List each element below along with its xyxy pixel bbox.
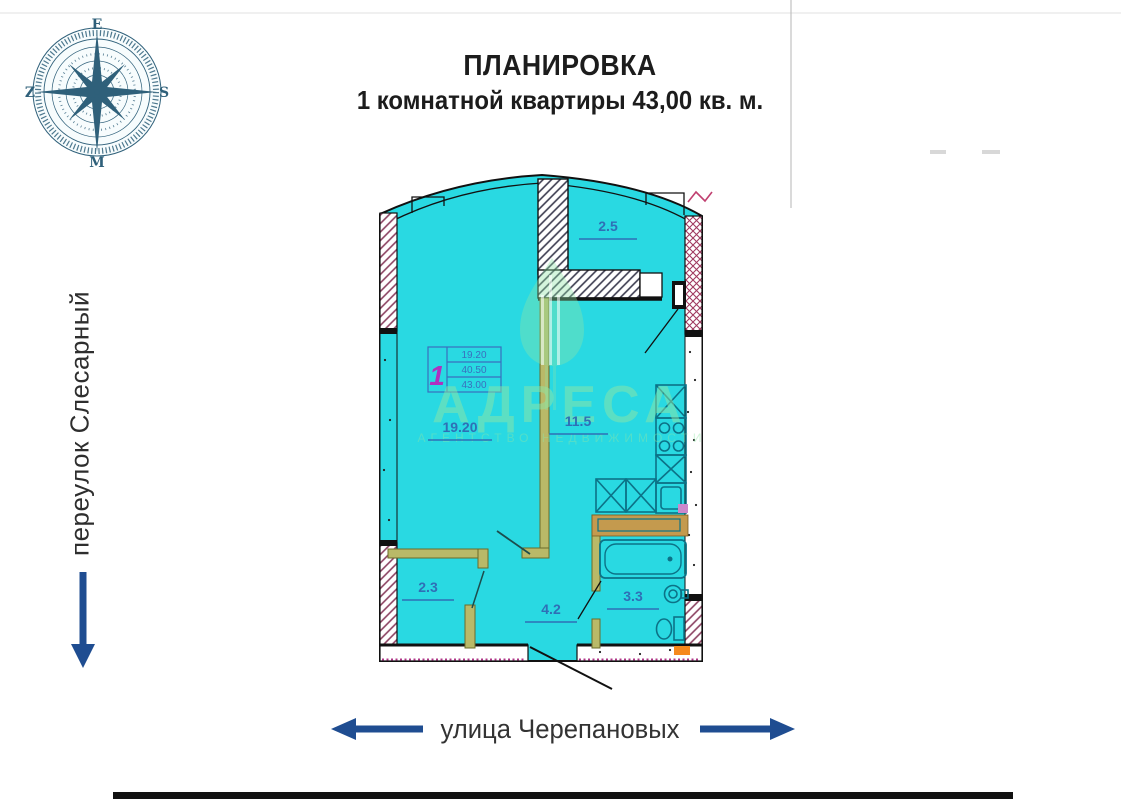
wall-right-middle [685,334,702,598]
partition-wardrobe-stub [465,605,475,648]
street-arrow-right [700,718,795,740]
wall-right-top [685,216,702,334]
floorplan-canvas: 1 19.20 40.50 43.00 АДРЕСА АГЕНТСТВО НЕД… [0,0,1121,800]
svg-text:19.20: 19.20 [442,419,477,435]
stamp-row1: 19.20 [461,350,486,361]
wall-left-top [380,213,397,331]
street-label-left: переулок Слесарный [65,284,96,564]
svg-text:11.5: 11.5 [565,413,592,429]
pink-marker [678,504,688,513]
title-line1: ПЛАНИРОВКА [284,50,836,83]
title-line2: 1 комнатной квартиры 43,00 кв. м. [284,85,836,116]
duct-box [640,273,662,297]
street-down-arrow [71,572,95,668]
floor-plan: 1 19.20 40.50 43.00 АДРЕСА АГЕНТСТВО НЕД… [380,175,712,689]
smudge-mark [930,150,946,154]
partition-wardrobe-jog [478,549,488,568]
compass-letter-right: S [159,85,169,101]
compass-letter-left: Z [25,85,35,101]
wall-check-mark [688,192,712,202]
street-arrow-left [331,718,423,740]
svg-text:4.2: 4.2 [541,601,561,617]
wall-left-bottom [380,543,397,660]
svg-text:2.5: 2.5 [598,218,618,234]
compass-rose: E S M Z [25,17,169,171]
compass-letter-top: E [92,17,103,33]
bathroom-top-wall [592,515,688,536]
footer-black-bar [113,792,1013,799]
svg-text:3.3: 3.3 [623,588,643,604]
svg-text:2.3: 2.3 [418,579,438,595]
stamp-row2: 40.50 [461,365,486,376]
compass-letter-bottom: M [89,155,105,171]
partition-corner [522,548,549,558]
smudge-mark [982,150,1000,154]
page: 1 19.20 40.50 43.00 АДРЕСА АГЕНТСТВО НЕД… [0,0,1121,800]
page-title: ПЛАНИРОВКА 1 комнатной квартиры 43,00 кв… [260,50,860,116]
partition-bathroom-stub [592,619,600,648]
orange-marker [674,646,690,655]
street-label-bottom: улица Черепановых [418,714,703,745]
partition-wardrobe-top [388,549,488,558]
wall-left-window [380,331,397,543]
